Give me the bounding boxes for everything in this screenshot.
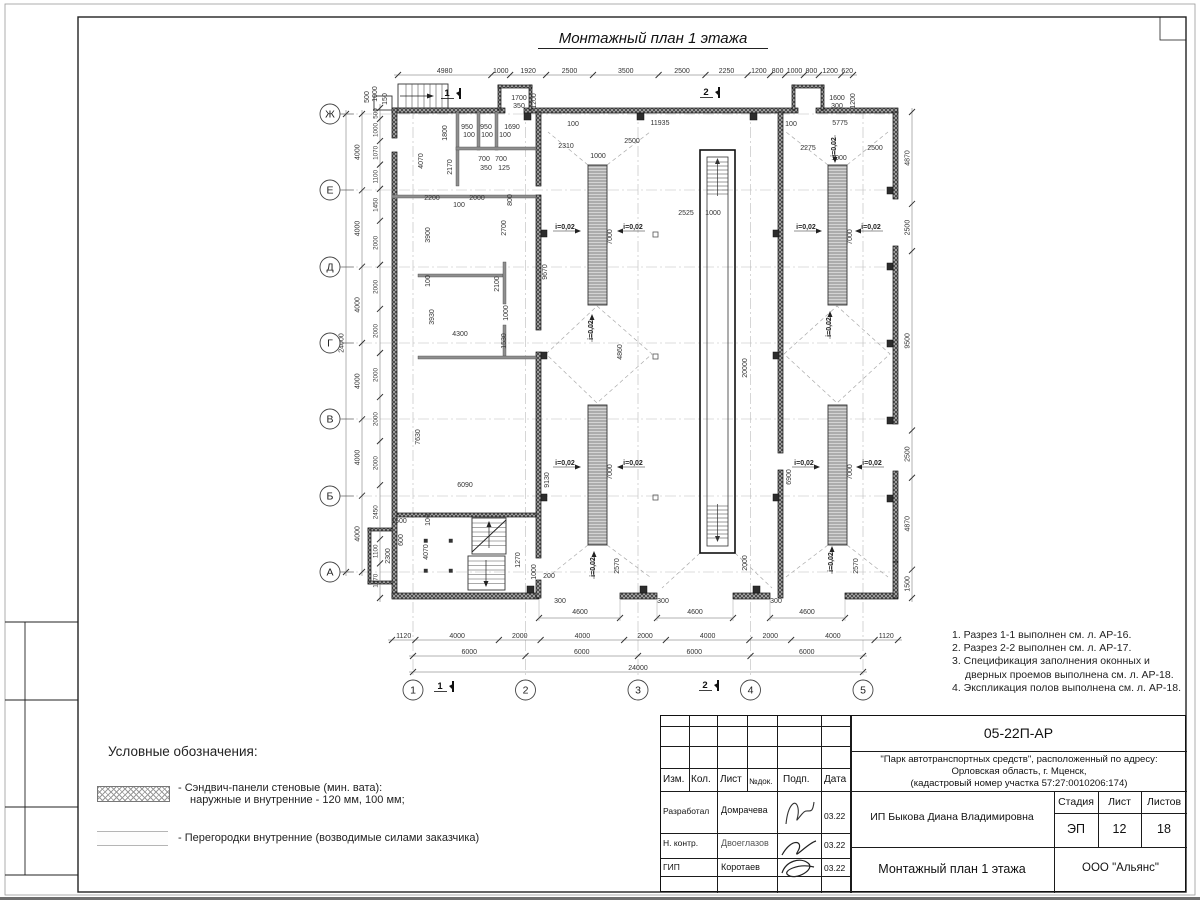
slope-label: i=0,02 bbox=[617, 224, 645, 234]
name-ncontr: Двоеглазов bbox=[721, 838, 769, 848]
dim-label: 4000 bbox=[355, 450, 362, 466]
svg-text:i=0,02: i=0,02 bbox=[588, 320, 595, 340]
slope-label: i=0,02 bbox=[588, 314, 595, 342]
dim-label: 7000 bbox=[847, 464, 854, 480]
dim-label: 2250 bbox=[719, 68, 735, 75]
dim-label: 2525 bbox=[678, 210, 694, 217]
dim-label: 4980 bbox=[437, 68, 453, 75]
dim-label: 1000 bbox=[503, 305, 510, 321]
dim-label: 1570 bbox=[373, 573, 380, 588]
svg-text:i=0,02: i=0,02 bbox=[796, 224, 816, 231]
dim-label: 4000 bbox=[355, 221, 362, 237]
slope-label: i=0,02 bbox=[553, 460, 581, 470]
dim-label: 2500 bbox=[624, 138, 640, 145]
dim-label: 2000 bbox=[373, 368, 380, 383]
svg-text:i=0,02: i=0,02 bbox=[794, 460, 814, 467]
dim-label: 4000 bbox=[700, 633, 716, 640]
col-ndok: №док. bbox=[749, 777, 772, 786]
page-title: Монтажный план 1 этажа bbox=[538, 30, 768, 49]
dim-label: 2000 bbox=[512, 633, 528, 640]
signature-gip bbox=[778, 833, 821, 885]
list-header: Лист bbox=[1098, 796, 1141, 808]
dim-label: 500 bbox=[364, 91, 371, 103]
dim-label: 125 bbox=[498, 165, 510, 172]
dim-label: 1120 bbox=[879, 633, 894, 640]
list-value: 12 bbox=[1098, 822, 1141, 836]
dim-label: 1200 bbox=[751, 68, 767, 75]
role-developer: Разработал bbox=[663, 806, 709, 816]
date-developer: 03.22 bbox=[824, 811, 845, 821]
section-mark: 1 bbox=[444, 88, 450, 99]
dim-label: 600 bbox=[398, 534, 405, 546]
dim-label: 1200 bbox=[531, 93, 538, 109]
slope-label: i=0,02 bbox=[792, 460, 820, 470]
dim-label: 2000 bbox=[373, 323, 380, 338]
dim-label: 1000 bbox=[787, 68, 803, 75]
dim-label: 100 bbox=[453, 202, 465, 209]
svg-text:i=0,02: i=0,02 bbox=[831, 137, 838, 157]
slope-label: i=0,02 bbox=[590, 551, 597, 579]
dim-label: 300 bbox=[770, 598, 782, 605]
dim-label: 6000 bbox=[686, 649, 702, 656]
note-line: 2. Разрез 2-2 выполнен см. л. АР-17. bbox=[952, 642, 1194, 655]
col-data: Дата bbox=[824, 774, 846, 785]
axis-label: 3 bbox=[635, 685, 641, 697]
axis-label: Ж bbox=[325, 109, 335, 121]
project-line-3: (кадастровый номер участка 57:27:0010206… bbox=[854, 778, 1184, 789]
notes-list: 1. Разрез 1-1 выполнен см. л. АР-16. 2. … bbox=[952, 629, 1194, 695]
doc-code: 05-22П-АР bbox=[850, 725, 1187, 741]
listov-value: 18 bbox=[1141, 822, 1187, 836]
dim-label: 2000 bbox=[742, 555, 749, 571]
axis-label: Д bbox=[326, 262, 333, 274]
dim-label: 4000 bbox=[449, 633, 465, 640]
slope-label: i=0,02 bbox=[828, 546, 835, 574]
dim-label: 500 bbox=[373, 108, 380, 119]
axis-label: 5 bbox=[860, 685, 866, 697]
dim-label: 2000 bbox=[373, 235, 380, 250]
col-list: Лист bbox=[720, 774, 742, 785]
dim-label: 2500 bbox=[867, 145, 883, 152]
dim-label: 950 bbox=[461, 124, 473, 131]
svg-text:i=0,02: i=0,02 bbox=[826, 317, 833, 337]
section-mark: 1 bbox=[437, 681, 443, 692]
dim-label: 4000 bbox=[355, 373, 362, 389]
dim-label: 20000 bbox=[742, 358, 749, 378]
dim-label: 1500 bbox=[391, 518, 407, 525]
col-kol: Кол. bbox=[691, 774, 711, 785]
dim-label: 100 bbox=[499, 132, 511, 139]
dim-label: 4600 bbox=[687, 609, 703, 616]
dim-label: 4000 bbox=[825, 633, 841, 640]
dim-label: 1600 bbox=[829, 95, 845, 102]
axis-label: Б bbox=[327, 491, 334, 503]
sandwich-panel-swatch bbox=[97, 786, 170, 802]
dim-label: 1920 bbox=[520, 68, 536, 75]
axis-label: В bbox=[326, 414, 333, 426]
dim-label: 100 bbox=[785, 121, 797, 128]
dim-label: 200 bbox=[543, 573, 555, 580]
dim-label: 300 bbox=[657, 598, 669, 605]
dim-label: 2500 bbox=[905, 220, 912, 236]
dim-label: 2570 bbox=[853, 558, 860, 574]
svg-text:i=0,02: i=0,02 bbox=[861, 224, 881, 231]
axis-label: 4 bbox=[748, 685, 754, 697]
date-gip: 03.22 bbox=[824, 863, 845, 873]
svg-text:i=0,02: i=0,02 bbox=[555, 224, 575, 231]
slope-label: i=0,02 bbox=[617, 460, 645, 470]
stage-header: Стадия bbox=[1054, 796, 1098, 808]
axis-label: А bbox=[326, 567, 333, 579]
dim-label: 2500 bbox=[905, 446, 912, 462]
dim-label: 1000 bbox=[705, 210, 721, 217]
dim-label: 7000 bbox=[607, 464, 614, 480]
dim-label: 4000 bbox=[355, 144, 362, 160]
dim-label: 4600 bbox=[572, 609, 588, 616]
dim-label: 3500 bbox=[618, 68, 634, 75]
dim-label: 100 bbox=[481, 132, 493, 139]
dim-label: 2300 bbox=[385, 548, 392, 564]
dim-label: 3930 bbox=[429, 309, 436, 325]
dim-label: 1450 bbox=[373, 197, 380, 212]
dim-label: 2000 bbox=[373, 279, 380, 294]
dim-label: 2100 bbox=[494, 276, 501, 292]
svg-text:i=0,02: i=0,02 bbox=[623, 224, 643, 231]
partition-swatch bbox=[97, 831, 168, 846]
dim-label: 2500 bbox=[674, 68, 690, 75]
dim-label: 2000 bbox=[637, 633, 653, 640]
section-mark: 2 bbox=[703, 87, 708, 98]
slope-label: i=0,02 bbox=[856, 460, 884, 470]
dim-label: 6000 bbox=[799, 649, 815, 656]
dim-label: 1270 bbox=[515, 552, 522, 568]
dim-label: 2310 bbox=[558, 143, 574, 150]
dim-label: 1700 bbox=[511, 95, 527, 102]
dim-label: 7000 bbox=[847, 229, 854, 245]
dim-label: 1100 bbox=[373, 169, 380, 183]
col-podp: Подп. bbox=[783, 774, 810, 785]
legend-item-2: - Перегородки внутренние (возводимые сил… bbox=[178, 832, 479, 845]
dim-label: 1070 bbox=[373, 145, 380, 160]
dim-label: 1800 bbox=[442, 125, 449, 141]
project-line-1: "Парк автотранспортных средств", располо… bbox=[854, 754, 1184, 765]
dim-label: 4870 bbox=[905, 516, 912, 532]
dim-label: 4600 bbox=[799, 609, 815, 616]
dim-label: 5775 bbox=[832, 120, 848, 127]
dim-label: 700 bbox=[478, 156, 490, 163]
dim-label: 1100 bbox=[373, 544, 380, 558]
role-gip: ГИП bbox=[663, 862, 680, 872]
svg-text:i=0,02: i=0,02 bbox=[590, 557, 597, 577]
company: ООО "Альянс" bbox=[1054, 862, 1187, 874]
slope-label: i=0,02 bbox=[553, 224, 581, 234]
dim-label: 150 bbox=[382, 93, 389, 105]
dim-label: 6000 bbox=[574, 649, 590, 656]
role-ncontr: Н. контр. bbox=[663, 838, 698, 848]
dim-label: 1000 bbox=[493, 68, 509, 75]
dim-label: 2000 bbox=[469, 195, 485, 202]
dim-label: 7000 bbox=[607, 229, 614, 245]
dim-label: 2000 bbox=[762, 633, 778, 640]
dim-label: 620 bbox=[841, 68, 853, 75]
dim-label: 100 bbox=[425, 514, 432, 526]
dim-label: 2200 bbox=[424, 195, 440, 202]
slope-label: i=0,02 bbox=[855, 224, 883, 234]
dim-label: 1530 bbox=[501, 333, 508, 349]
dim-label: 350 bbox=[480, 165, 492, 172]
dim-label: 24000 bbox=[628, 665, 648, 672]
dim-label: 1120 bbox=[396, 633, 411, 640]
dim-label: 11935 bbox=[651, 120, 670, 127]
dim-label: 9670 bbox=[542, 264, 549, 280]
dim-label: 300 bbox=[554, 598, 566, 605]
dim-label: 1200 bbox=[822, 68, 838, 75]
legend-item-1-line-2: наружные и внутренние - 120 мм, 100 мм; bbox=[190, 794, 405, 807]
dim-label: 1000 bbox=[531, 564, 538, 580]
dim-label: 7630 bbox=[415, 429, 422, 445]
col-izm: Изм. bbox=[663, 774, 684, 785]
legend-header: Условные обозначения: bbox=[108, 744, 258, 759]
dim-label: 1000 bbox=[372, 86, 379, 102]
svg-text:i=0,02: i=0,02 bbox=[623, 460, 643, 467]
axis-label: Г bbox=[327, 338, 333, 350]
dim-label: 9130 bbox=[544, 472, 551, 488]
dim-label: 4860 bbox=[617, 344, 624, 360]
svg-text:i=0,02: i=0,02 bbox=[555, 460, 575, 467]
client: ИП Быкова Диана Владимировна bbox=[852, 811, 1052, 823]
dim-label: 4000 bbox=[575, 633, 591, 640]
dim-label: 6000 bbox=[461, 649, 477, 656]
note-line: 4. Экспликация полов выполнена см. л. АР… bbox=[952, 682, 1194, 695]
dim-label: 1000 bbox=[373, 123, 380, 138]
dim-label: 1000 bbox=[590, 153, 606, 160]
axis-label: 1 bbox=[410, 685, 416, 697]
name-gip: Коротаев bbox=[721, 862, 760, 872]
dim-label: 950 bbox=[480, 124, 492, 131]
dim-label: 1200 bbox=[850, 93, 857, 109]
dim-label: 6900 bbox=[786, 469, 793, 485]
dim-label: 800 bbox=[806, 68, 818, 75]
stage-value: ЭП bbox=[1054, 822, 1098, 836]
dim-label: 3900 bbox=[425, 227, 432, 243]
legend-item-1-line-1: - Сэндвич-панели стеновые (мин. вата): bbox=[178, 782, 382, 795]
project-line-2: Орловская область, г. Мценск, bbox=[854, 766, 1184, 777]
dim-label: 9500 bbox=[905, 333, 912, 349]
listov-header: Листов bbox=[1141, 796, 1187, 808]
dim-label: 300 bbox=[831, 103, 843, 110]
dim-label: 2450 bbox=[373, 505, 380, 520]
svg-text:i=0,02: i=0,02 bbox=[828, 552, 835, 572]
dim-label: 4870 bbox=[905, 150, 912, 166]
dim-label: 2700 bbox=[501, 220, 508, 236]
dim-label: 4300 bbox=[452, 331, 468, 338]
note-line: 3. Спецификация заполнения оконных и две… bbox=[952, 655, 1194, 681]
dim-label: 4000 bbox=[355, 297, 362, 313]
dim-label: 2570 bbox=[614, 558, 621, 574]
dim-label: 4000 bbox=[355, 526, 362, 542]
signature-developer bbox=[778, 792, 821, 832]
dim-label: 4070 bbox=[418, 153, 425, 169]
dim-label: 6090 bbox=[457, 482, 473, 489]
dim-label: 100 bbox=[425, 275, 432, 287]
dim-label: 700 bbox=[495, 156, 507, 163]
dim-label: 2000 bbox=[373, 456, 380, 471]
dim-label: 800 bbox=[772, 68, 784, 75]
svg-text:i=0,02: i=0,02 bbox=[862, 460, 882, 467]
name-developer: Домрачева bbox=[721, 805, 768, 815]
dim-label: 2170 bbox=[447, 159, 454, 175]
title-block: Изм. Кол. Лист №док. Подп. Дата Разработ… bbox=[660, 715, 1186, 892]
dim-label: 1500 bbox=[905, 576, 912, 592]
section-mark: 2 bbox=[702, 680, 707, 691]
dim-label: 350 bbox=[513, 103, 525, 110]
dim-label: 100 bbox=[463, 132, 475, 139]
sheet-name: Монтажный план 1 этажа bbox=[852, 862, 1052, 876]
date-ncontr: 03.22 bbox=[824, 840, 845, 850]
dim-label: 2000 bbox=[373, 412, 380, 427]
axis-label: 2 bbox=[523, 685, 529, 697]
axis-label: Е bbox=[326, 185, 333, 197]
dim-label: 100 bbox=[567, 121, 579, 128]
dim-label: 2500 bbox=[562, 68, 578, 75]
drawing-sheet: { "sheet_title": "Монтажный план 1 этажа… bbox=[0, 0, 1200, 900]
dim-label: 1690 bbox=[504, 124, 520, 131]
slope-label: i=0,02 bbox=[794, 224, 822, 234]
dim-label: 2275 bbox=[800, 145, 816, 152]
dim-label: 4070 bbox=[423, 544, 430, 560]
dim-label: 800 bbox=[507, 194, 514, 206]
note-line: 1. Разрез 1-1 выполнен см. л. АР-16. bbox=[952, 629, 1194, 642]
